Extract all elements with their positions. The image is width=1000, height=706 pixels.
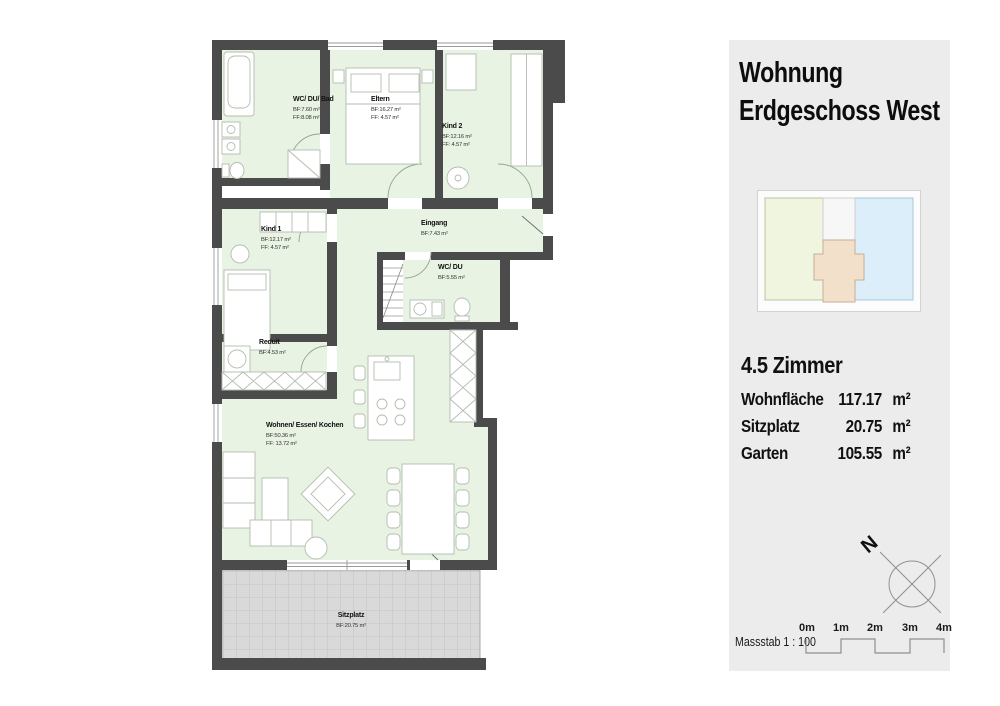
- scale-tick-1: 1m: [833, 622, 849, 634]
- stat-unit: m²: [882, 386, 917, 413]
- room-label-wcdu: WC/ DU BF:5.55 m²: [438, 263, 465, 282]
- page-title: Wohnung Erdgeschoss West: [739, 55, 940, 130]
- room-label-eltern: Eltern BF:16.27 m² FF: 4.57 m²: [371, 95, 401, 123]
- chair-icon-kind2: [447, 167, 469, 189]
- shower-icon: [288, 150, 320, 178]
- side-table-icon: [305, 537, 327, 559]
- stat-row-sitzplatz: Sitzplatz 20.75 m²: [741, 413, 917, 440]
- room-label-kind2: Kind 2 BF:12.16 m² FF: 4.57 m²: [442, 122, 472, 150]
- compass-n-label: N: [860, 532, 882, 558]
- tall-cabinet-icon: [450, 330, 476, 422]
- scale-text: Massstab 1 : 100: [735, 635, 816, 649]
- floorplan-page: WC/ DU/ Bad BF:7.60 m² FF:8.08 m² Eltern…: [0, 0, 1000, 706]
- stat-label: Wohnfläche: [741, 386, 828, 413]
- title-line-1: Wohnung: [739, 55, 940, 93]
- room-label-kind1: Kind 1 BF:12.17 m² FF: 4.57 m²: [261, 225, 291, 253]
- coffee-table-icon: [262, 478, 288, 520]
- scale-ruler: 0m 1m 2m 3m 4m: [805, 622, 950, 662]
- compass-north: N: [860, 528, 950, 628]
- desk-icon-kind2: [446, 54, 476, 90]
- toilet-icon: [222, 163, 244, 179]
- bathtub-icon: [224, 52, 254, 116]
- stat-label: Sitzplatz: [741, 413, 828, 440]
- room-label-reduit: Reduit BF:4.53 m²: [259, 338, 286, 357]
- stat-unit: m²: [882, 440, 917, 467]
- stat-value: 105.55: [828, 440, 882, 467]
- shelf-icon-reduit: [222, 372, 326, 390]
- toilet-icon-wcdu: [454, 298, 470, 321]
- room-label-bad: WC/ DU/ Bad BF:7.60 m² FF:8.08 m²: [293, 95, 334, 123]
- scale-ruler-line: [805, 636, 947, 656]
- vanity-icon-wcdu: [410, 300, 444, 318]
- scale-bar: Massstab 1 : 100 0m 1m 2m 3m 4m: [735, 622, 947, 678]
- site-building-west: [765, 198, 823, 300]
- stat-unit: m²: [882, 413, 917, 440]
- stat-value: 117.17: [828, 386, 882, 413]
- scale-tick-2: 2m: [867, 622, 883, 634]
- living-floor-upper: [222, 398, 474, 424]
- washer-icon: [224, 346, 250, 372]
- stat-row-garten: Garten 105.55 m²: [741, 440, 917, 467]
- title-line-2: Erdgeschoss West: [739, 93, 940, 131]
- scale-tick-3: 3m: [902, 622, 918, 634]
- site-minimap: [757, 190, 921, 312]
- room-label-sitzplatz: Sitzplatz BF:20.75 m²: [336, 611, 366, 630]
- chair-icon-kind1: [231, 245, 249, 263]
- site-building-center: [823, 198, 855, 242]
- room-label-wohnen: Wohnen/ Essen/ Kochen BF:50.36 m² FF: 13…: [266, 421, 343, 449]
- stat-row-wohnflaeche: Wohnfläche 117.17 m²: [741, 386, 917, 413]
- site-building-east: [855, 198, 913, 300]
- scale-tick-4: 4m: [936, 622, 952, 634]
- kitchen-island-icon: [368, 356, 414, 440]
- bar-stools-icon: [354, 366, 365, 428]
- scale-tick-0: 0m: [799, 622, 815, 634]
- rooms-count-heading: 4.5 Zimmer: [741, 352, 917, 379]
- info-panel: Wohnung Erdgeschoss West 4.5 Zimmer Wohn…: [729, 40, 950, 671]
- wardrobe-icon-kind2: [511, 54, 542, 166]
- stat-value: 20.75: [828, 413, 882, 440]
- stat-label: Garten: [741, 440, 828, 467]
- apartment-stats: 4.5 Zimmer Wohnfläche 117.17 m² Sitzplat…: [741, 352, 917, 467]
- stairs: [383, 264, 403, 318]
- room-label-eingang: Eingang BF:7.43 m²: [421, 219, 448, 238]
